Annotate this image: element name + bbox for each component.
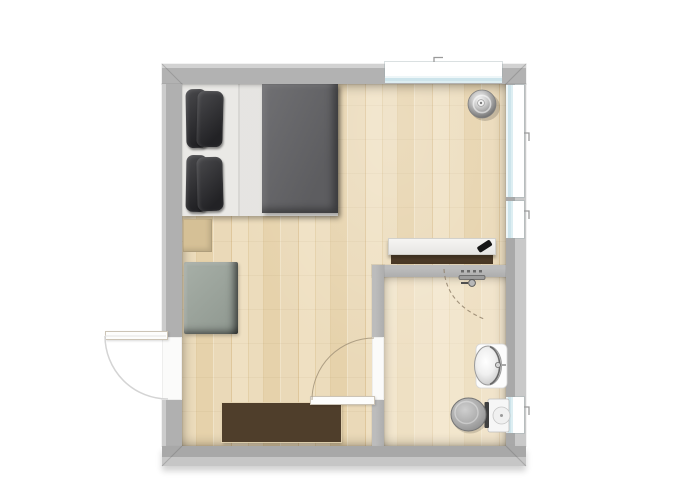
floor-plan	[0, 0, 700, 500]
wash-basin	[475, 344, 508, 388]
toilet	[451, 398, 510, 434]
shower-mixer-icon	[459, 270, 485, 286]
fixture-overlay	[0, 0, 700, 500]
entry-door-swing-arc	[105, 336, 168, 399]
laptop	[477, 239, 493, 253]
floor-lamp	[468, 90, 500, 121]
bathroom-door-swing-arc	[312, 338, 374, 400]
